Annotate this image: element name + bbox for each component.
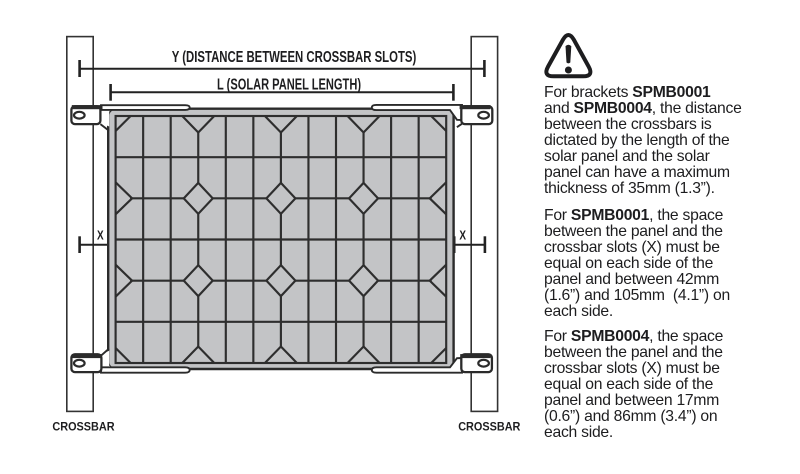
svg-text:L (SOLAR PANEL LENGTH): L (SOLAR PANEL LENGTH)	[217, 76, 361, 93]
svg-text:X: X	[97, 229, 104, 242]
svg-text:CROSSBAR: CROSSBAR	[52, 421, 114, 433]
svg-text:Y (DISTANCE BETWEEN CROSSBAR S: Y (DISTANCE BETWEEN CROSSBAR SLOTS)	[172, 48, 417, 65]
svg-text:CROSSBAR: CROSSBAR	[458, 421, 520, 433]
svg-text:X: X	[459, 229, 466, 242]
